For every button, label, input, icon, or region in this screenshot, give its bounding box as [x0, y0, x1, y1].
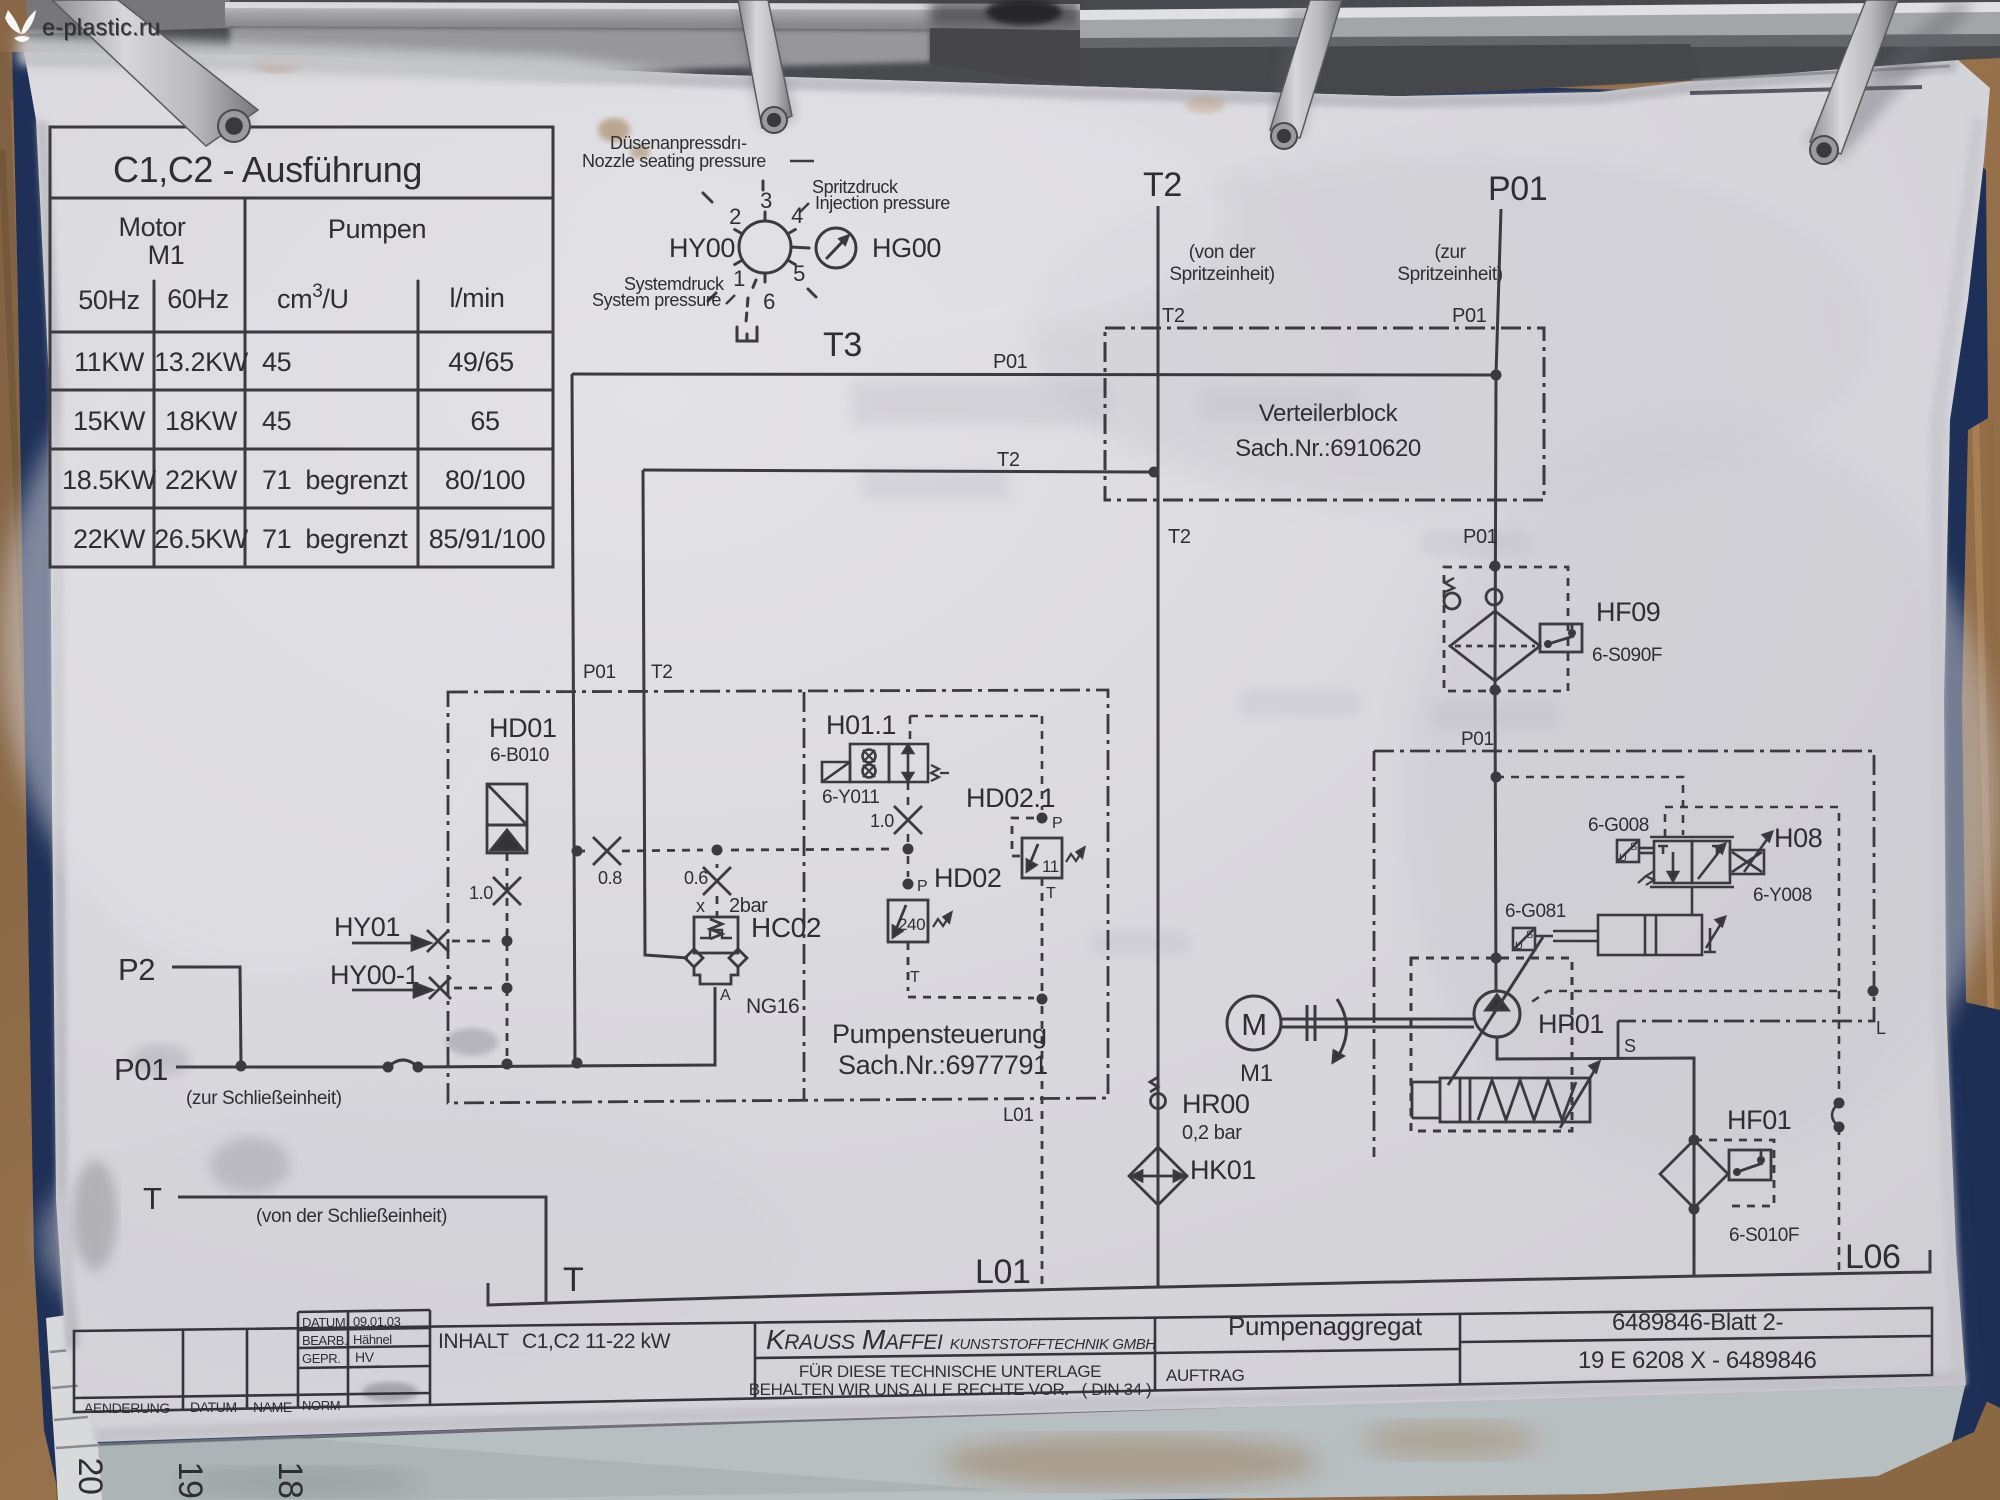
svg-text:HY01: HY01 [334, 912, 400, 942]
svg-text:60Hz: 60Hz [167, 284, 228, 314]
svg-text:22KW: 22KW [73, 524, 146, 554]
svg-text:T2: T2 [1168, 526, 1191, 548]
svg-text:L: L [1876, 1018, 1886, 1038]
svg-text:FÜR DIESE TECHNISCHE UNTERLAGE: FÜR DIESE TECHNISCHE UNTERLAGE [799, 1362, 1101, 1381]
svg-text:NORM: NORM [302, 1398, 340, 1413]
svg-text:U: U [1619, 852, 1627, 864]
svg-text:45: 45 [262, 347, 291, 377]
svg-text:P01: P01 [1488, 170, 1547, 208]
svg-text:C1,C2 - Ausführung: C1,C2 - Ausführung [113, 149, 422, 190]
svg-text:(zur Schließeinheit): (zur Schließeinheit) [186, 1088, 342, 1109]
svg-text:AENDERUNG: AENDERUNG [84, 1400, 170, 1416]
svg-text:0.6: 0.6 [684, 868, 708, 888]
svg-text:HF01: HF01 [1727, 1105, 1791, 1135]
svg-text:HD02.1: HD02.1 [966, 783, 1055, 813]
svg-text:L01: L01 [1003, 1105, 1034, 1126]
svg-text:6-S090F: 6-S090F [1592, 645, 1662, 666]
svg-text:26.5KW: 26.5KW [154, 524, 249, 554]
svg-text:Injection pressure: Injection pressure [815, 193, 950, 213]
svg-text:Pumpensteuerung: Pumpensteuerung [832, 1019, 1047, 1049]
svg-text:Spritzeinheit): Spritzeinheit) [1397, 264, 1502, 285]
svg-text:18: 18 [271, 1461, 309, 1498]
svg-text:BEHALTEN WIR UNS ALLE RECHTE V: BEHALTEN WIR UNS ALLE RECHTE VOR. ( DIN … [749, 1380, 1152, 1399]
svg-text:BEARB.: BEARB. [302, 1333, 347, 1348]
svg-text:S: S [1630, 841, 1637, 853]
svg-text:6-Y011: 6-Y011 [822, 787, 879, 808]
svg-text:0,2 bar: 0,2 bar [1182, 1122, 1242, 1144]
svg-text:1.0: 1.0 [870, 811, 894, 831]
svg-text:HY00-1: HY00-1 [330, 960, 419, 990]
svg-text:HG00: HG00 [872, 233, 941, 263]
svg-text:T2: T2 [1143, 166, 1182, 204]
svg-text:19 E 6208 X - 6489846: 19 E 6208 X - 6489846 [1578, 1347, 1817, 1374]
svg-text:HD01: HD01 [489, 713, 556, 743]
svg-text:HF09: HF09 [1596, 597, 1660, 627]
svg-text:NAME: NAME [253, 1399, 292, 1415]
svg-text:HD02: HD02 [934, 863, 1001, 893]
svg-text:L01: L01 [975, 1253, 1031, 1291]
svg-text:240: 240 [898, 915, 925, 934]
svg-text:6-S010F: 6-S010F [1729, 1225, 1799, 1246]
svg-text:71 begrenzt: 71 begrenzt [262, 524, 408, 554]
svg-text:HP01: HP01 [1538, 1009, 1604, 1039]
svg-text:1: 1 [733, 266, 745, 291]
svg-text:6489846-Blatt 2-: 6489846-Blatt 2- [1612, 1309, 1783, 1336]
svg-text:HC02: HC02 [751, 912, 821, 943]
svg-text:6-G008: 6-G008 [1588, 815, 1649, 836]
svg-text:Verteilerblock: Verteilerblock [1259, 400, 1399, 427]
svg-text:Hähnel: Hähnel [353, 1332, 392, 1347]
svg-text:H08: H08 [1774, 823, 1822, 853]
svg-text:A: A [720, 987, 731, 1004]
svg-text:System pressure: System pressure [592, 290, 721, 310]
svg-text:22KW: 22KW [165, 465, 238, 495]
svg-text:DATUM: DATUM [302, 1315, 345, 1330]
svg-text:T: T [563, 1261, 583, 1299]
svg-text:T2: T2 [1162, 305, 1185, 327]
svg-text:Nozzle seating pressure: Nozzle seating pressure [582, 151, 766, 171]
svg-text:S: S [1624, 1036, 1636, 1056]
svg-text:Motor: Motor [118, 212, 185, 242]
svg-text:(zur: (zur [1434, 242, 1466, 263]
svg-text:P01: P01 [1461, 729, 1494, 750]
svg-text:Sach.Nr.:6977791: Sach.Nr.:6977791 [838, 1050, 1048, 1080]
svg-text:0.8: 0.8 [598, 868, 622, 888]
svg-text:Pumpenaggregat: Pumpenaggregat [1228, 1311, 1423, 1341]
svg-text:2: 2 [729, 204, 741, 229]
svg-text:H01.1: H01.1 [826, 710, 896, 740]
svg-text:M1: M1 [1240, 1060, 1273, 1087]
svg-text:(von der Schließeinheit): (von der Schließeinheit) [256, 1206, 447, 1227]
svg-text:T: T [910, 969, 920, 986]
svg-text:e-plastic.ru: e-plastic.ru [42, 14, 160, 40]
svg-text:T2: T2 [651, 662, 672, 683]
svg-text:Spritzeinheit): Spritzeinheit) [1169, 264, 1274, 285]
svg-text:18KW: 18KW [165, 406, 238, 436]
svg-text:GEPR.: GEPR. [302, 1351, 340, 1366]
svg-text:80/100: 80/100 [445, 465, 525, 495]
svg-text:49/65: 49/65 [448, 347, 514, 377]
svg-text:HY00: HY00 [669, 233, 735, 263]
svg-text:P01: P01 [1463, 526, 1498, 548]
svg-text:(von der: (von der [1189, 242, 1257, 263]
svg-text:85/91/100: 85/91/100 [429, 524, 546, 554]
svg-text:S: S [1526, 929, 1533, 941]
svg-text:11KW: 11KW [74, 347, 145, 377]
svg-text:20: 20 [71, 1457, 109, 1494]
svg-text:P01: P01 [1452, 305, 1487, 327]
svg-text:P01: P01 [993, 351, 1028, 373]
svg-text:C1,C2 11-22 kW: C1,C2 11-22 kW [522, 1330, 671, 1353]
svg-text:19: 19 [171, 1461, 209, 1498]
svg-text:Sach.Nr.:6910620: Sach.Nr.:6910620 [1235, 435, 1421, 462]
svg-text:DATUM: DATUM [190, 1399, 237, 1415]
svg-text:M: M [1241, 1007, 1266, 1042]
svg-text:T3: T3 [823, 326, 862, 364]
svg-text:65: 65 [470, 406, 499, 436]
svg-text:4: 4 [791, 203, 803, 228]
svg-text:P: P [917, 878, 927, 895]
svg-text:P: P [1052, 815, 1062, 832]
svg-text:NG16: NG16 [746, 995, 799, 1018]
svg-text:50Hz: 50Hz [78, 285, 139, 315]
svg-text:INHALT: INHALT [438, 1330, 509, 1353]
svg-text:P2: P2 [118, 952, 155, 987]
svg-text:P01: P01 [583, 662, 616, 683]
svg-text:15KW: 15KW [73, 406, 146, 436]
svg-text:3: 3 [760, 188, 772, 213]
svg-text:11: 11 [1042, 857, 1059, 876]
svg-text:Pumpen: Pumpen [328, 214, 426, 244]
svg-text:U: U [1515, 940, 1523, 952]
svg-text:Düsenanpressdrı-: Düsenanpressdrı- [610, 133, 747, 153]
svg-text:HK01: HK01 [1190, 1155, 1256, 1185]
svg-text:5: 5 [793, 261, 805, 286]
svg-text:6-B010: 6-B010 [490, 745, 549, 766]
svg-text:HR00: HR00 [1182, 1089, 1249, 1119]
svg-text:M1: M1 [148, 240, 185, 270]
svg-text:x: x [696, 896, 705, 916]
svg-text:HV: HV [355, 1349, 375, 1365]
svg-text:18.5KW: 18.5KW [62, 465, 157, 495]
svg-text:13.2KW: 13.2KW [154, 347, 249, 377]
svg-text:l/min: l/min [449, 283, 504, 313]
svg-text:09.01.03: 09.01.03 [353, 1314, 401, 1329]
svg-text:P01: P01 [114, 1052, 168, 1087]
svg-text:71 begrenzt: 71 begrenzt [262, 465, 408, 495]
svg-text:6-Y008: 6-Y008 [1753, 885, 1812, 906]
svg-text:T2: T2 [997, 449, 1020, 471]
svg-text:T: T [1046, 885, 1056, 902]
svg-text:1.0: 1.0 [469, 883, 493, 903]
svg-text:T: T [143, 1181, 162, 1216]
svg-text:L06: L06 [1845, 1238, 1901, 1276]
svg-text:6-G081: 6-G081 [1505, 901, 1566, 922]
svg-text:6: 6 [763, 289, 775, 314]
svg-text:45: 45 [262, 406, 291, 436]
svg-text:AUFTRAG: AUFTRAG [1166, 1366, 1244, 1385]
